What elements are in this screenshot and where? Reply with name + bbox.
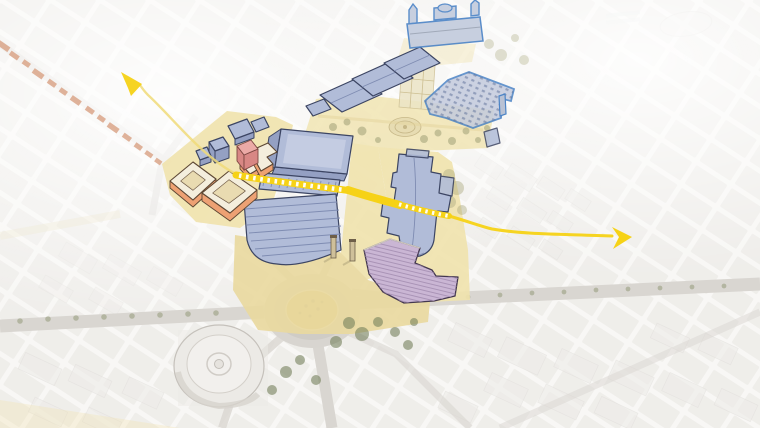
column-2-cap	[349, 239, 356, 242]
arena-oculus	[215, 360, 224, 369]
palace-dome	[438, 4, 452, 12]
column-1-cap	[330, 235, 337, 238]
church-porch	[406, 149, 429, 158]
masterplan-canvas	[0, 0, 760, 428]
column-1	[331, 237, 336, 258]
circular-parterre-center	[403, 125, 407, 129]
palace-tower-left	[409, 4, 417, 24]
great-hall-roof-panel	[283, 134, 346, 169]
outlined-hall-chimney	[499, 94, 506, 116]
palace-tower-right	[471, 0, 479, 16]
ridged-halls	[244, 194, 341, 265]
blue-annex-east	[484, 128, 500, 147]
masterplan-aerial-view	[0, 0, 760, 428]
column-2	[350, 241, 355, 261]
great-flat-hall	[263, 129, 353, 181]
arena-building	[174, 325, 268, 407]
